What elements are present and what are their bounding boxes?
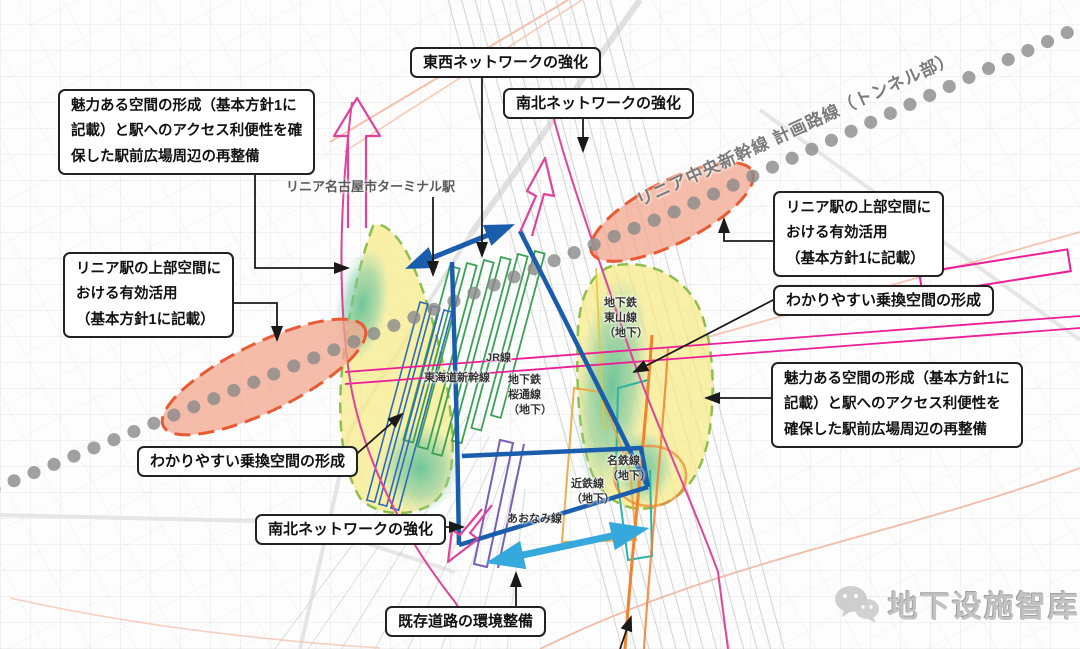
callout-east-west-network: 東西ネットワークの強化 [410,47,601,78]
callout-line: 確保した駅前広場周辺の再整備 [784,418,1010,443]
sakuradori-subway-label: 地下鉄 桜通線 （地下） [508,373,552,418]
callout-label: 東西ネットワークの強化 [423,54,588,71]
callout-north-south-network-top: 南北ネットワークの強化 [503,88,694,119]
callout-label: 南北ネットワークの強化 [516,95,681,112]
callout-line: リニア駅の上部空間に [76,257,221,282]
higashiyama-subway-label: 地下鉄 東山線 （地下） [604,296,648,341]
callout-line: （基本方針1に記載） [76,308,221,333]
callout-attractive-space-left: 魅力ある空間の形成（基本方針1に 記載）と駅へのアクセス利便性を確 保した駅前広… [58,89,315,175]
callout-transfer-space-right: わかりやすい乗換空間の形成 [773,285,994,316]
terminal-station-label: リニア名古屋市ターミナル駅 [286,176,455,195]
watermark: 地下设施智库 [834,582,1080,626]
aonami-line-label: あおなみ線 [507,512,562,527]
callout-line: おける有効活用 [76,282,221,307]
callout-line: おける有効活用 [786,221,931,246]
callout-north-south-network-bottom: 南北ネットワークの強化 [255,514,446,545]
callout-existing-road: 既存道路の環境整備 [385,606,546,637]
existing-road-double-arrow [495,530,640,561]
callout-linear-upper-space-right: リニア駅の上部空間に おける有効活用 （基本方針1に記載） [773,191,944,277]
callout-line: 魅力ある空間の形成（基本方針1に [784,367,1010,392]
callout-attractive-space-right: 魅力ある空間の形成（基本方針1に 記載）と駅へのアクセス利便性を 確保した駅前広… [771,362,1023,448]
tokaido-shinkansen-label: 東海道新幹線 [424,371,490,386]
callout-label: 既存道路の環境整備 [398,613,533,630]
callout-line: 記載）と駅へのアクセス利便性を確 [71,119,302,144]
callout-label: わかりやすい乗換空間の形成 [150,453,345,470]
south-pink-arrow [448,505,492,562]
callout-linear-upper-space-left: リニア駅の上部空間に おける有効活用 （基本方針1に記載） [63,252,234,338]
callout-transfer-space-left: わかりやすい乗換空間の形成 [137,446,358,477]
watermark-text: 地下设施智库 [888,582,1080,626]
planning-map-figure: 東西ネットワークの強化 南北ネットワークの強化 魅力ある空間の形成（基本方針1に… [0,0,1080,649]
callout-label: 南北ネットワークの強化 [268,521,433,538]
callout-line: リニア駅の上部空間に [786,196,931,221]
jr-line-label: JR線 [486,351,511,366]
north-pink-arrow [334,98,380,228]
kintetsu-line-label: 近鉄線 （地下） [571,477,615,507]
aonami-line-outline [498,444,524,568]
callout-line: （基本方針1に記載） [786,247,931,272]
callout-line: 保した駅前広場周辺の再整備 [71,145,302,170]
callout-line: 魅力ある空間の形成（基本方針1に [71,94,302,119]
east-west-axis-arrow [412,227,508,266]
callout-line: 記載）と駅へのアクセス利便性を [784,392,1010,417]
callout-label: わかりやすい乗換空間の形成 [786,292,981,309]
wechat-icon [834,584,880,624]
